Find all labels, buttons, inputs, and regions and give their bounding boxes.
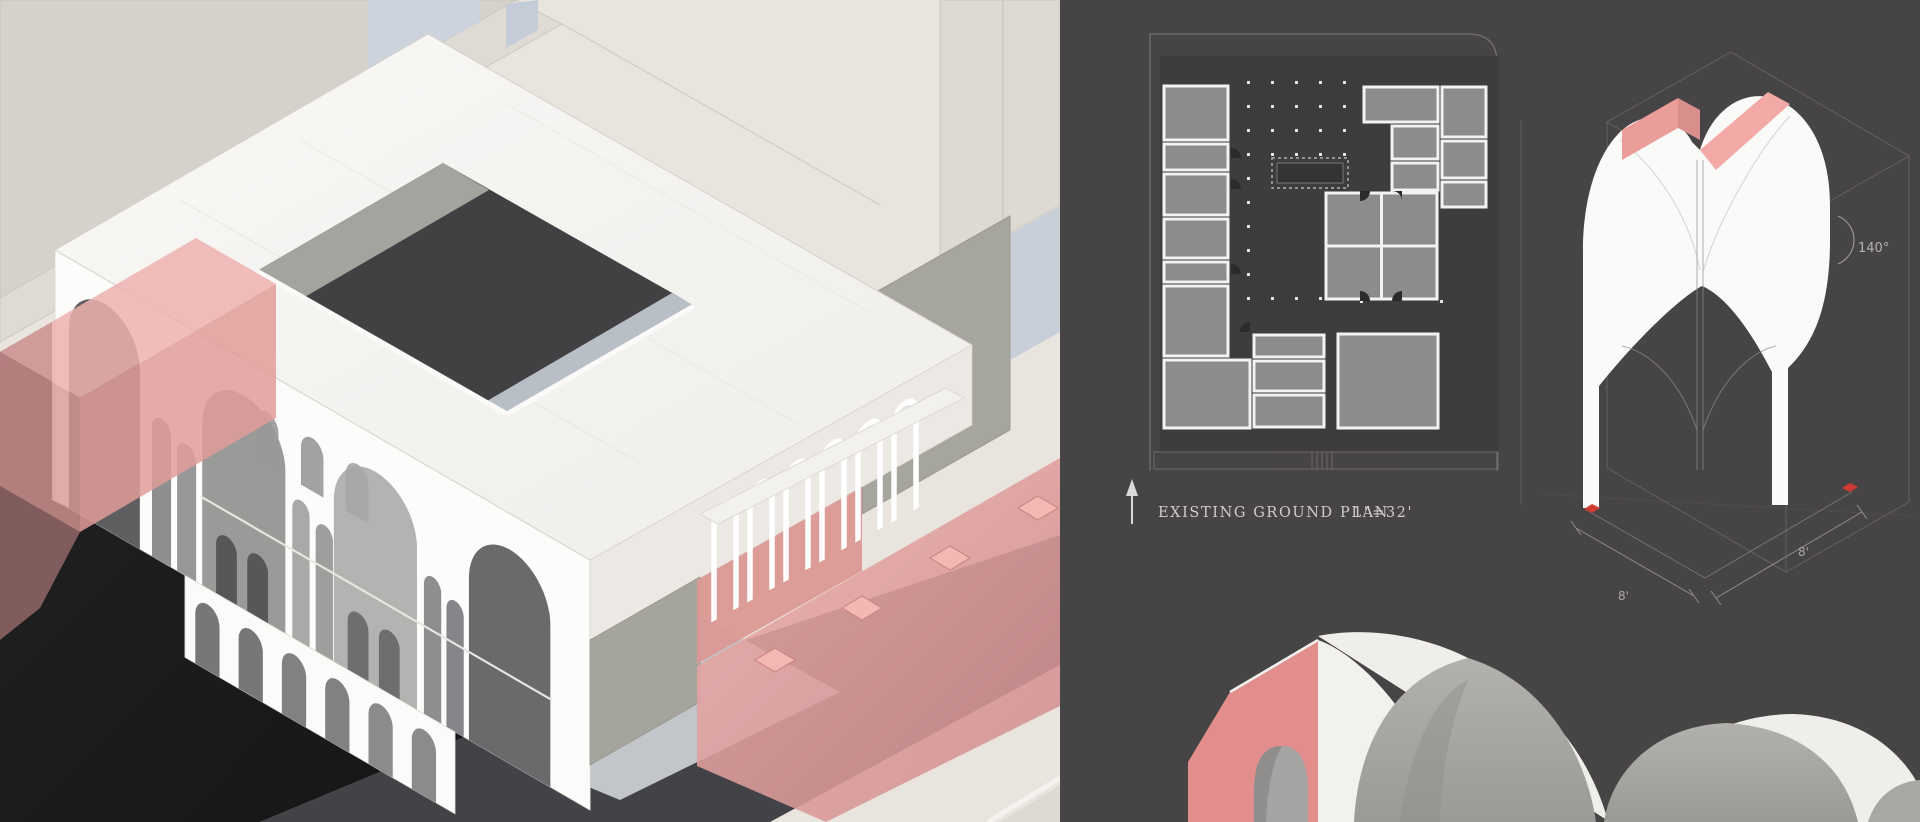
board-canvas: EXISTING GROUND PLAN 1"=32': [0, 0, 1920, 822]
plan-scale-label: 1"=32': [1353, 505, 1413, 521]
angle-label: 140°: [1858, 241, 1889, 256]
dimension-label-right: 8': [1798, 545, 1809, 559]
axon-render-panel: [0, 0, 1060, 822]
presentation-board: EXISTING GROUND PLAN 1"=32': [0, 0, 1920, 822]
drawings-panel: EXISTING GROUND PLAN 1"=32': [1060, 0, 1920, 822]
dimension-label-left: 8': [1618, 589, 1629, 603]
floor-plan-drawing: EXISTING GROUND PLAN 1"=32': [1126, 34, 1521, 524]
